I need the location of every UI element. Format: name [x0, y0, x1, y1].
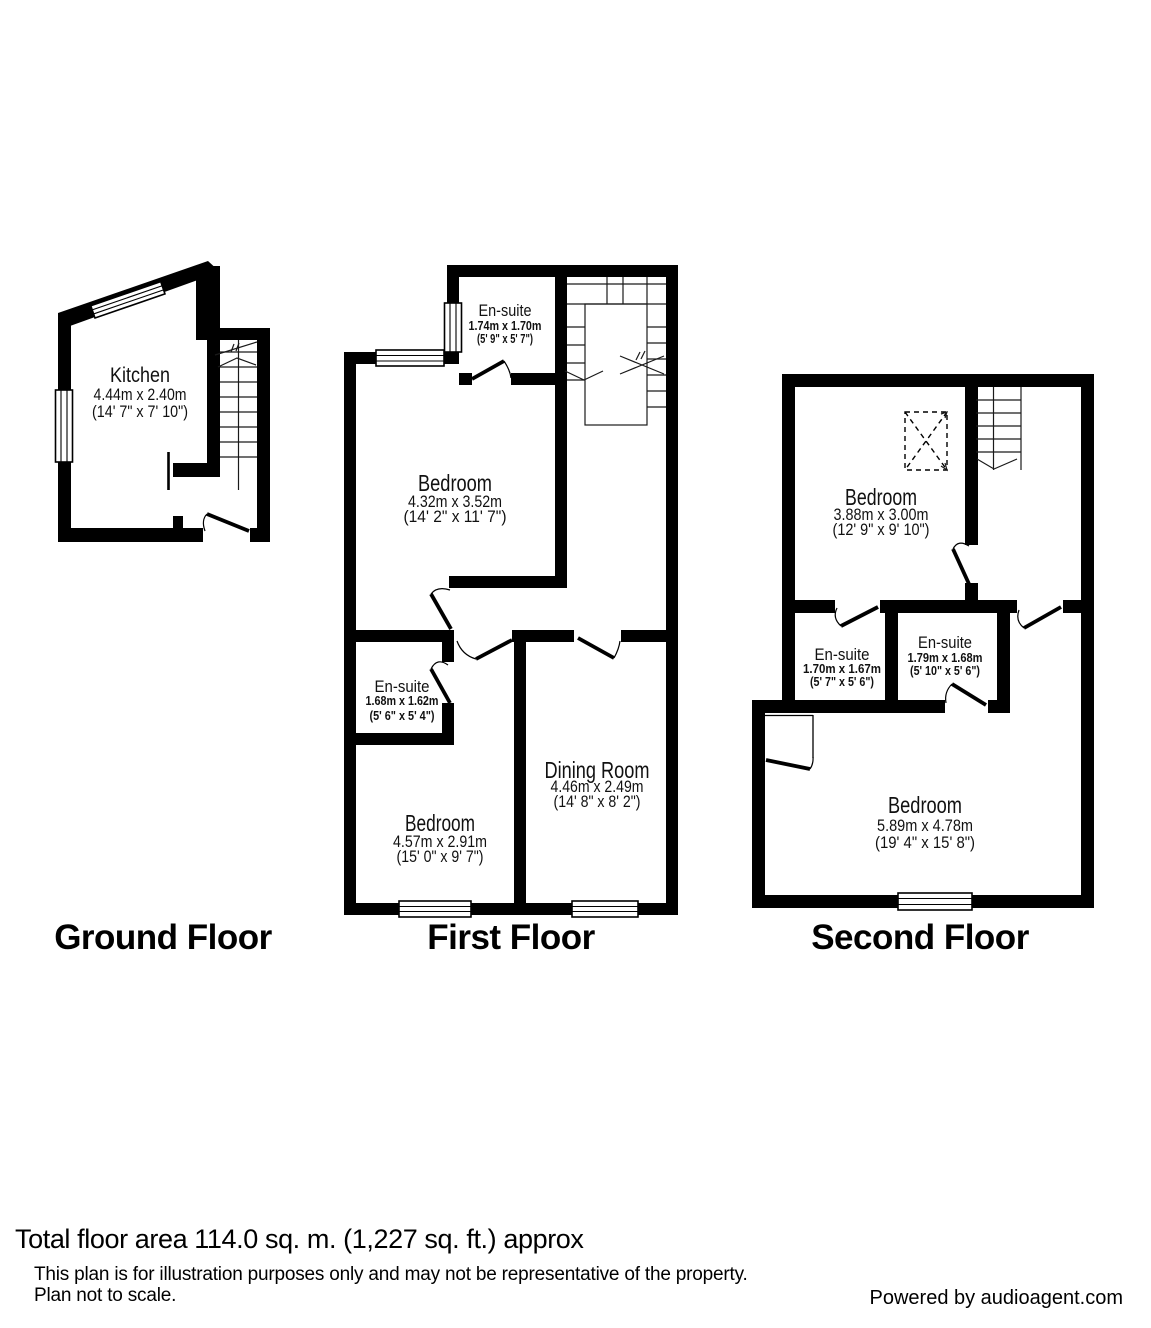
floorplan-page: Kitchen 4.44m x 2.40m (14' 7" x 7' 10"): [0, 0, 1151, 1328]
room-dimensions-imperial: (5' 6" x 5' 4"): [370, 709, 435, 723]
door: [946, 684, 986, 705]
room-name: Bedroom: [888, 792, 962, 818]
window: [376, 350, 444, 366]
window: [56, 390, 73, 462]
disclaimer-line-2: Plan not to scale.: [34, 1285, 176, 1307]
disclaimer-line-1: This plan is for illustration purposes o…: [34, 1264, 748, 1286]
door: [472, 361, 511, 379]
door: [457, 640, 512, 659]
window: [399, 901, 471, 917]
room-label-ensuite: En-suite 1.74m x 1.70m (5' 9" x 5' 7"): [469, 301, 542, 346]
room-label-ensuite: En-suite 1.70m x 1.67m (5' 7" x 5' 6"): [803, 645, 881, 689]
door: [203, 514, 249, 531]
window: [898, 893, 972, 910]
room-label-bedroom: Bedroom 3.88m x 3.00m (12' 9" x 9' 10"): [833, 484, 930, 539]
room-label-ensuite: En-suite 1.79m x 1.68m (5' 10" x 5' 6"): [908, 633, 983, 678]
first-floor-label: First Floor: [381, 918, 641, 958]
second-floor-label: Second Floor: [790, 918, 1050, 958]
room-name: Kitchen: [110, 364, 170, 387]
ground-floor-label: Ground Floor: [33, 918, 293, 958]
room-dimensions-metric: 1.68m x 1.62m: [366, 694, 439, 708]
door: [1018, 607, 1061, 628]
room-dimensions-imperial: (5' 10" x 5' 6"): [910, 664, 980, 678]
door: [431, 589, 451, 629]
room-dimensions-imperial: (5' 7" x 5' 6"): [810, 675, 874, 689]
room-dimensions-imperial: (14' 2" x 11' 7"): [404, 507, 507, 526]
room-label-ensuite: En-suite 1.68m x 1.62m (5' 6" x 5' 4"): [366, 677, 439, 723]
room-label-bedroom: Bedroom 4.57m x 2.91m (15' 0" x 9' 7"): [393, 810, 487, 866]
door: [835, 607, 878, 626]
credit: Powered by audioagent.com: [870, 1287, 1124, 1310]
room-label-kitchen: Kitchen 4.44m x 2.40m (14' 7" x 7' 10"): [92, 364, 188, 421]
second-floor-plan: Bedroom 3.88m x 3.00m (12' 9" x 9' 10") …: [745, 365, 1105, 915]
cupboard: [765, 715, 813, 769]
room-dimensions-imperial: (14' 7" x 7' 10"): [92, 402, 188, 421]
door: [578, 638, 620, 658]
room-label-bedroom: Bedroom 5.89m x 4.78m (19' 4" x 15' 8"): [875, 792, 975, 852]
room-name: En-suite: [479, 301, 532, 320]
first-floor-plan: En-suite 1.74m x 1.70m (5' 9" x 5' 7") B…: [335, 255, 685, 925]
total-floor-area: Total floor area 114.0 sq. m. (1,227 sq.…: [15, 1224, 584, 1255]
door: [953, 543, 969, 584]
room-dimensions-imperial: (5' 9" x 5' 7"): [477, 332, 533, 346]
room-dimensions-imperial: (12' 9" x 9' 10"): [833, 520, 930, 539]
window: [572, 901, 638, 917]
room-label-bedroom: Bedroom 4.32m x 3.52m (14' 2" x 11' 7"): [404, 470, 507, 526]
room-label-dining-room: Dining Room 4.46m x 2.49m (14' 8" x 8' 2…: [545, 757, 650, 811]
skylight: [905, 412, 947, 470]
ground-floor-plan: Kitchen 4.44m x 2.40m (14' 7" x 7' 10"): [50, 255, 280, 555]
room-dimensions-imperial: (15' 0" x 9' 7"): [397, 847, 484, 866]
window: [445, 303, 462, 352]
room-dimensions-imperial: (19' 4" x 15' 8"): [875, 833, 975, 852]
room-dimensions-metric: 1.79m x 1.68m: [908, 651, 983, 665]
staircase: [976, 387, 1021, 470]
staircase: [215, 340, 257, 490]
room-dimensions-metric: 1.70m x 1.67m: [803, 662, 881, 676]
staircase: [565, 277, 666, 425]
room-dimensions-metric: 1.74m x 1.70m: [469, 319, 542, 333]
room-name: En-suite: [918, 633, 972, 652]
room-dimensions-imperial: (14' 8" x 8' 2"): [554, 792, 641, 811]
